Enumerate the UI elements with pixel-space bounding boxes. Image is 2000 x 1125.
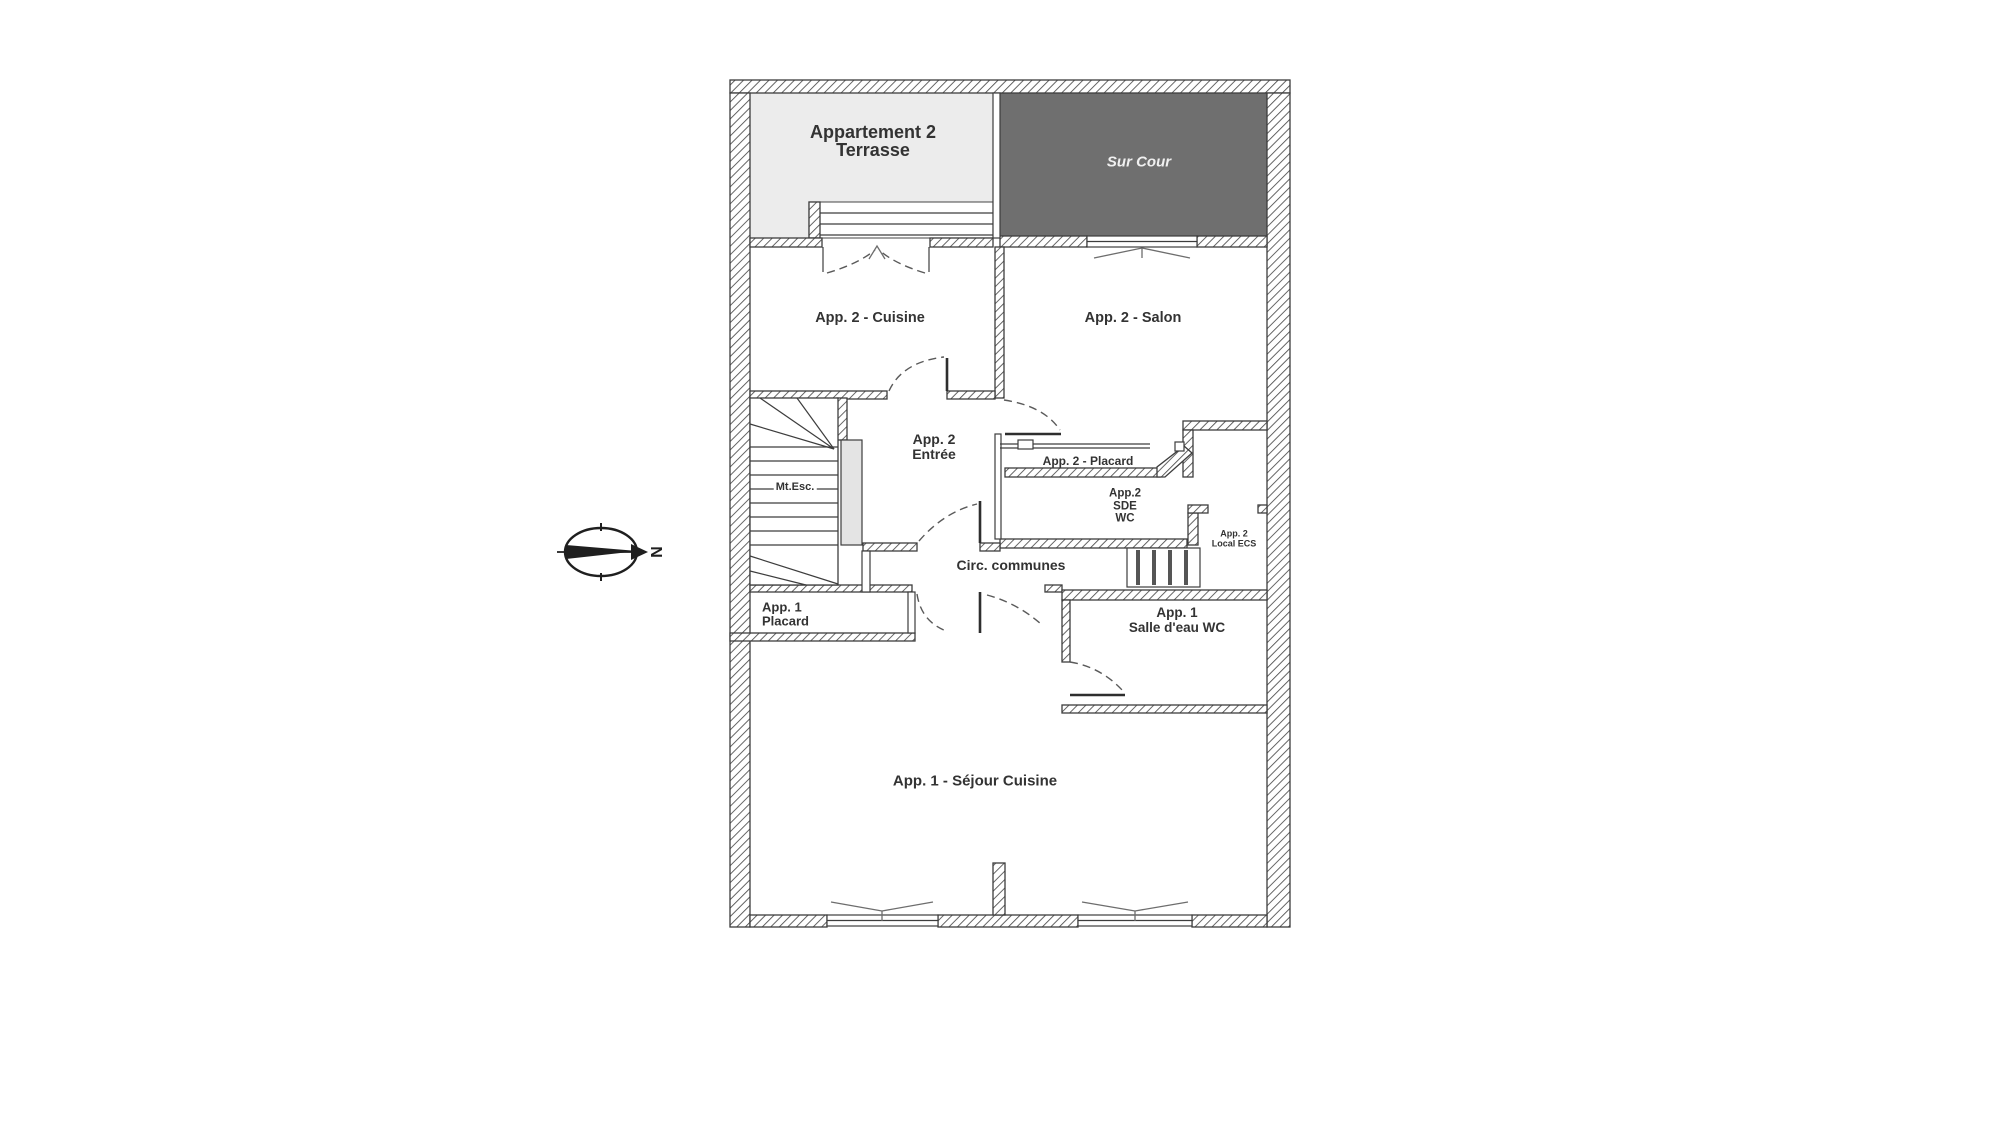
room-label-circ-communes: Circ. communes — [957, 557, 1066, 573]
room-label-line: Placard — [762, 614, 809, 628]
room-label-sejour: App. 1 - Séjour Cuisine — [893, 773, 1057, 790]
room-label-salle-eau: App. 1 Salle d'eau WC — [1129, 605, 1225, 635]
duct-shaft — [1127, 548, 1200, 587]
compass — [557, 523, 648, 581]
room-label-salon: App. 2 - Salon — [1085, 310, 1182, 326]
room-label-line: SDE — [1109, 500, 1141, 513]
room-label-sur-cour: Sur Cour — [1107, 154, 1171, 171]
room-label-placard-app1: App. 1 Placard — [762, 601, 809, 628]
room-label-line: App. 1 — [762, 601, 809, 615]
room-label-line: App. 1 — [1129, 605, 1225, 620]
terrace-steps — [809, 202, 993, 238]
window-icon — [827, 902, 938, 926]
door-swing-icon — [919, 501, 980, 543]
room-label-line: Appartement 2 — [810, 123, 936, 141]
floor-plan-page: Appartement 2 Terrasse Sur Cour App. 2 -… — [0, 0, 2000, 1125]
window-icon — [1078, 902, 1192, 926]
door-swing-icon — [917, 592, 1041, 633]
window-icon — [1087, 236, 1197, 258]
french-door-swing-icon — [823, 246, 929, 273]
door-swing-icon — [1004, 400, 1061, 434]
room-label-line: Salle d'eau WC — [1129, 620, 1225, 635]
room-label-entree: App. 2 Entrée — [912, 432, 956, 462]
stair-newel-wall — [841, 440, 862, 545]
room-label-terrasse: Appartement 2 Terrasse — [810, 123, 936, 159]
room-label-line: Entrée — [912, 447, 956, 462]
stairs-label-mt-esc: Mt.Esc. — [774, 481, 817, 493]
room-label-line: Local ECS — [1212, 539, 1257, 549]
room-label-local-ecs: App. 2 Local ECS — [1212, 530, 1257, 549]
room-label-placard-app2: App. 2 - Placard — [1043, 454, 1134, 468]
compass-north-label: N — [646, 546, 664, 558]
room-label-line: Terrasse — [810, 141, 936, 159]
door-swing-icon — [1070, 662, 1125, 695]
room-label-line: App.2 — [1109, 487, 1141, 500]
room-label-cuisine: App. 2 - Cuisine — [815, 310, 925, 326]
room-label-line: WC — [1109, 512, 1141, 525]
room-label-sde-wc: App.2 SDE WC — [1109, 487, 1141, 525]
room-label-line: App. 2 — [912, 432, 956, 447]
door-swing-icon — [889, 357, 947, 391]
